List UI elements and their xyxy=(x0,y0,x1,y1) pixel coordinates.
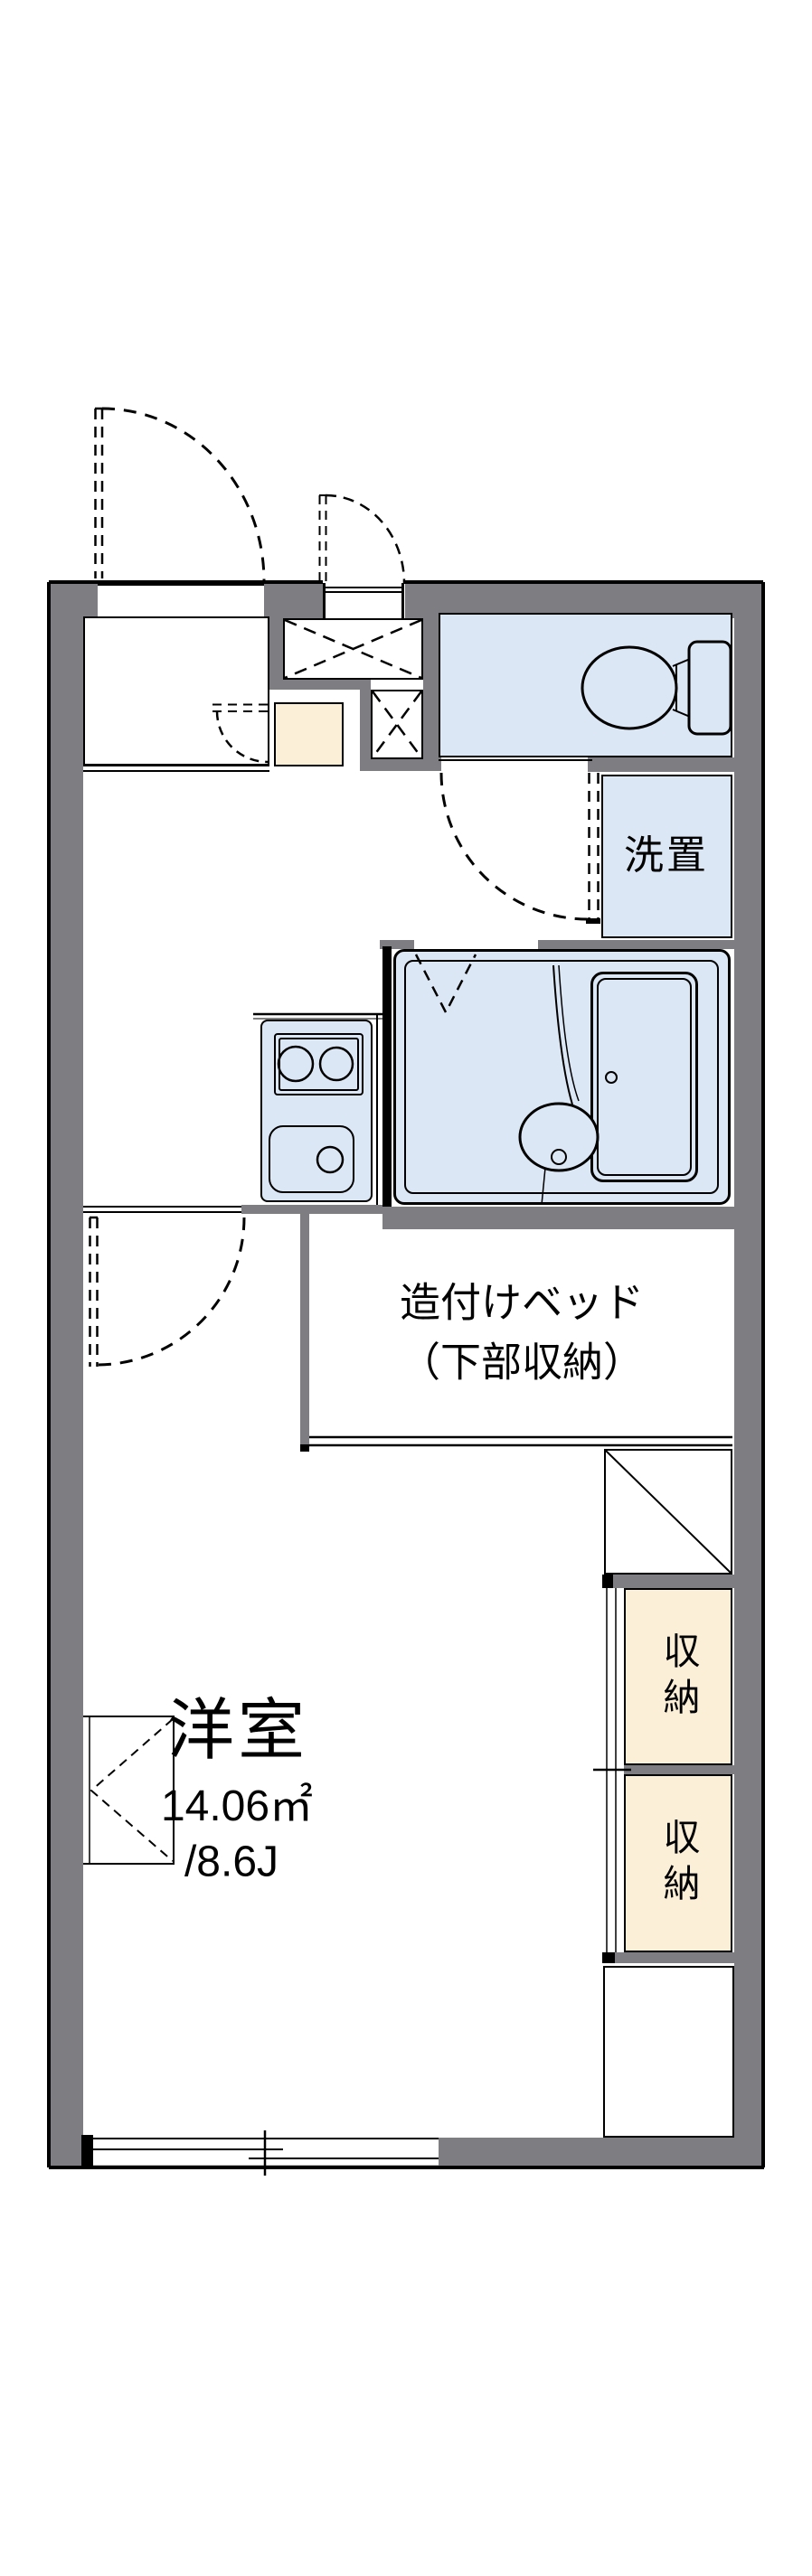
room-name-label: 洋室 xyxy=(167,1677,308,1773)
over-bed-diagonal xyxy=(606,1451,731,1573)
built-in-bed-sublabel: （下部収納） xyxy=(400,1330,644,1388)
bathroom-fixtures xyxy=(416,954,617,1205)
washer-room-label: 洗置 xyxy=(624,823,709,880)
closet-slider-lines xyxy=(593,1588,631,1952)
floor-plan-canvas: 洗置 造付けベッド （下部収納） 洋室 14.06㎡ /8.6J 収納 収納 xyxy=(0,0,812,2576)
utility-door-swing xyxy=(319,495,404,583)
entrance-door-swing xyxy=(95,409,264,581)
built-in-bed-label: 造付けベッド xyxy=(400,1270,644,1329)
closet-lower-label: 収納 xyxy=(651,1818,705,1910)
pipe-space-x-marks xyxy=(285,620,421,757)
closet-upper-label: 収納 xyxy=(651,1631,705,1724)
room-door-swing xyxy=(90,1217,244,1367)
room-jo-label: /8.6J xyxy=(184,1838,279,1887)
room-area-label: 14.06㎡ xyxy=(161,1770,313,1833)
hall-door-swing xyxy=(212,705,269,763)
washroom-door-swing xyxy=(441,773,600,921)
toilet-icon xyxy=(582,642,731,734)
kitchen-fixtures xyxy=(279,1047,353,1172)
